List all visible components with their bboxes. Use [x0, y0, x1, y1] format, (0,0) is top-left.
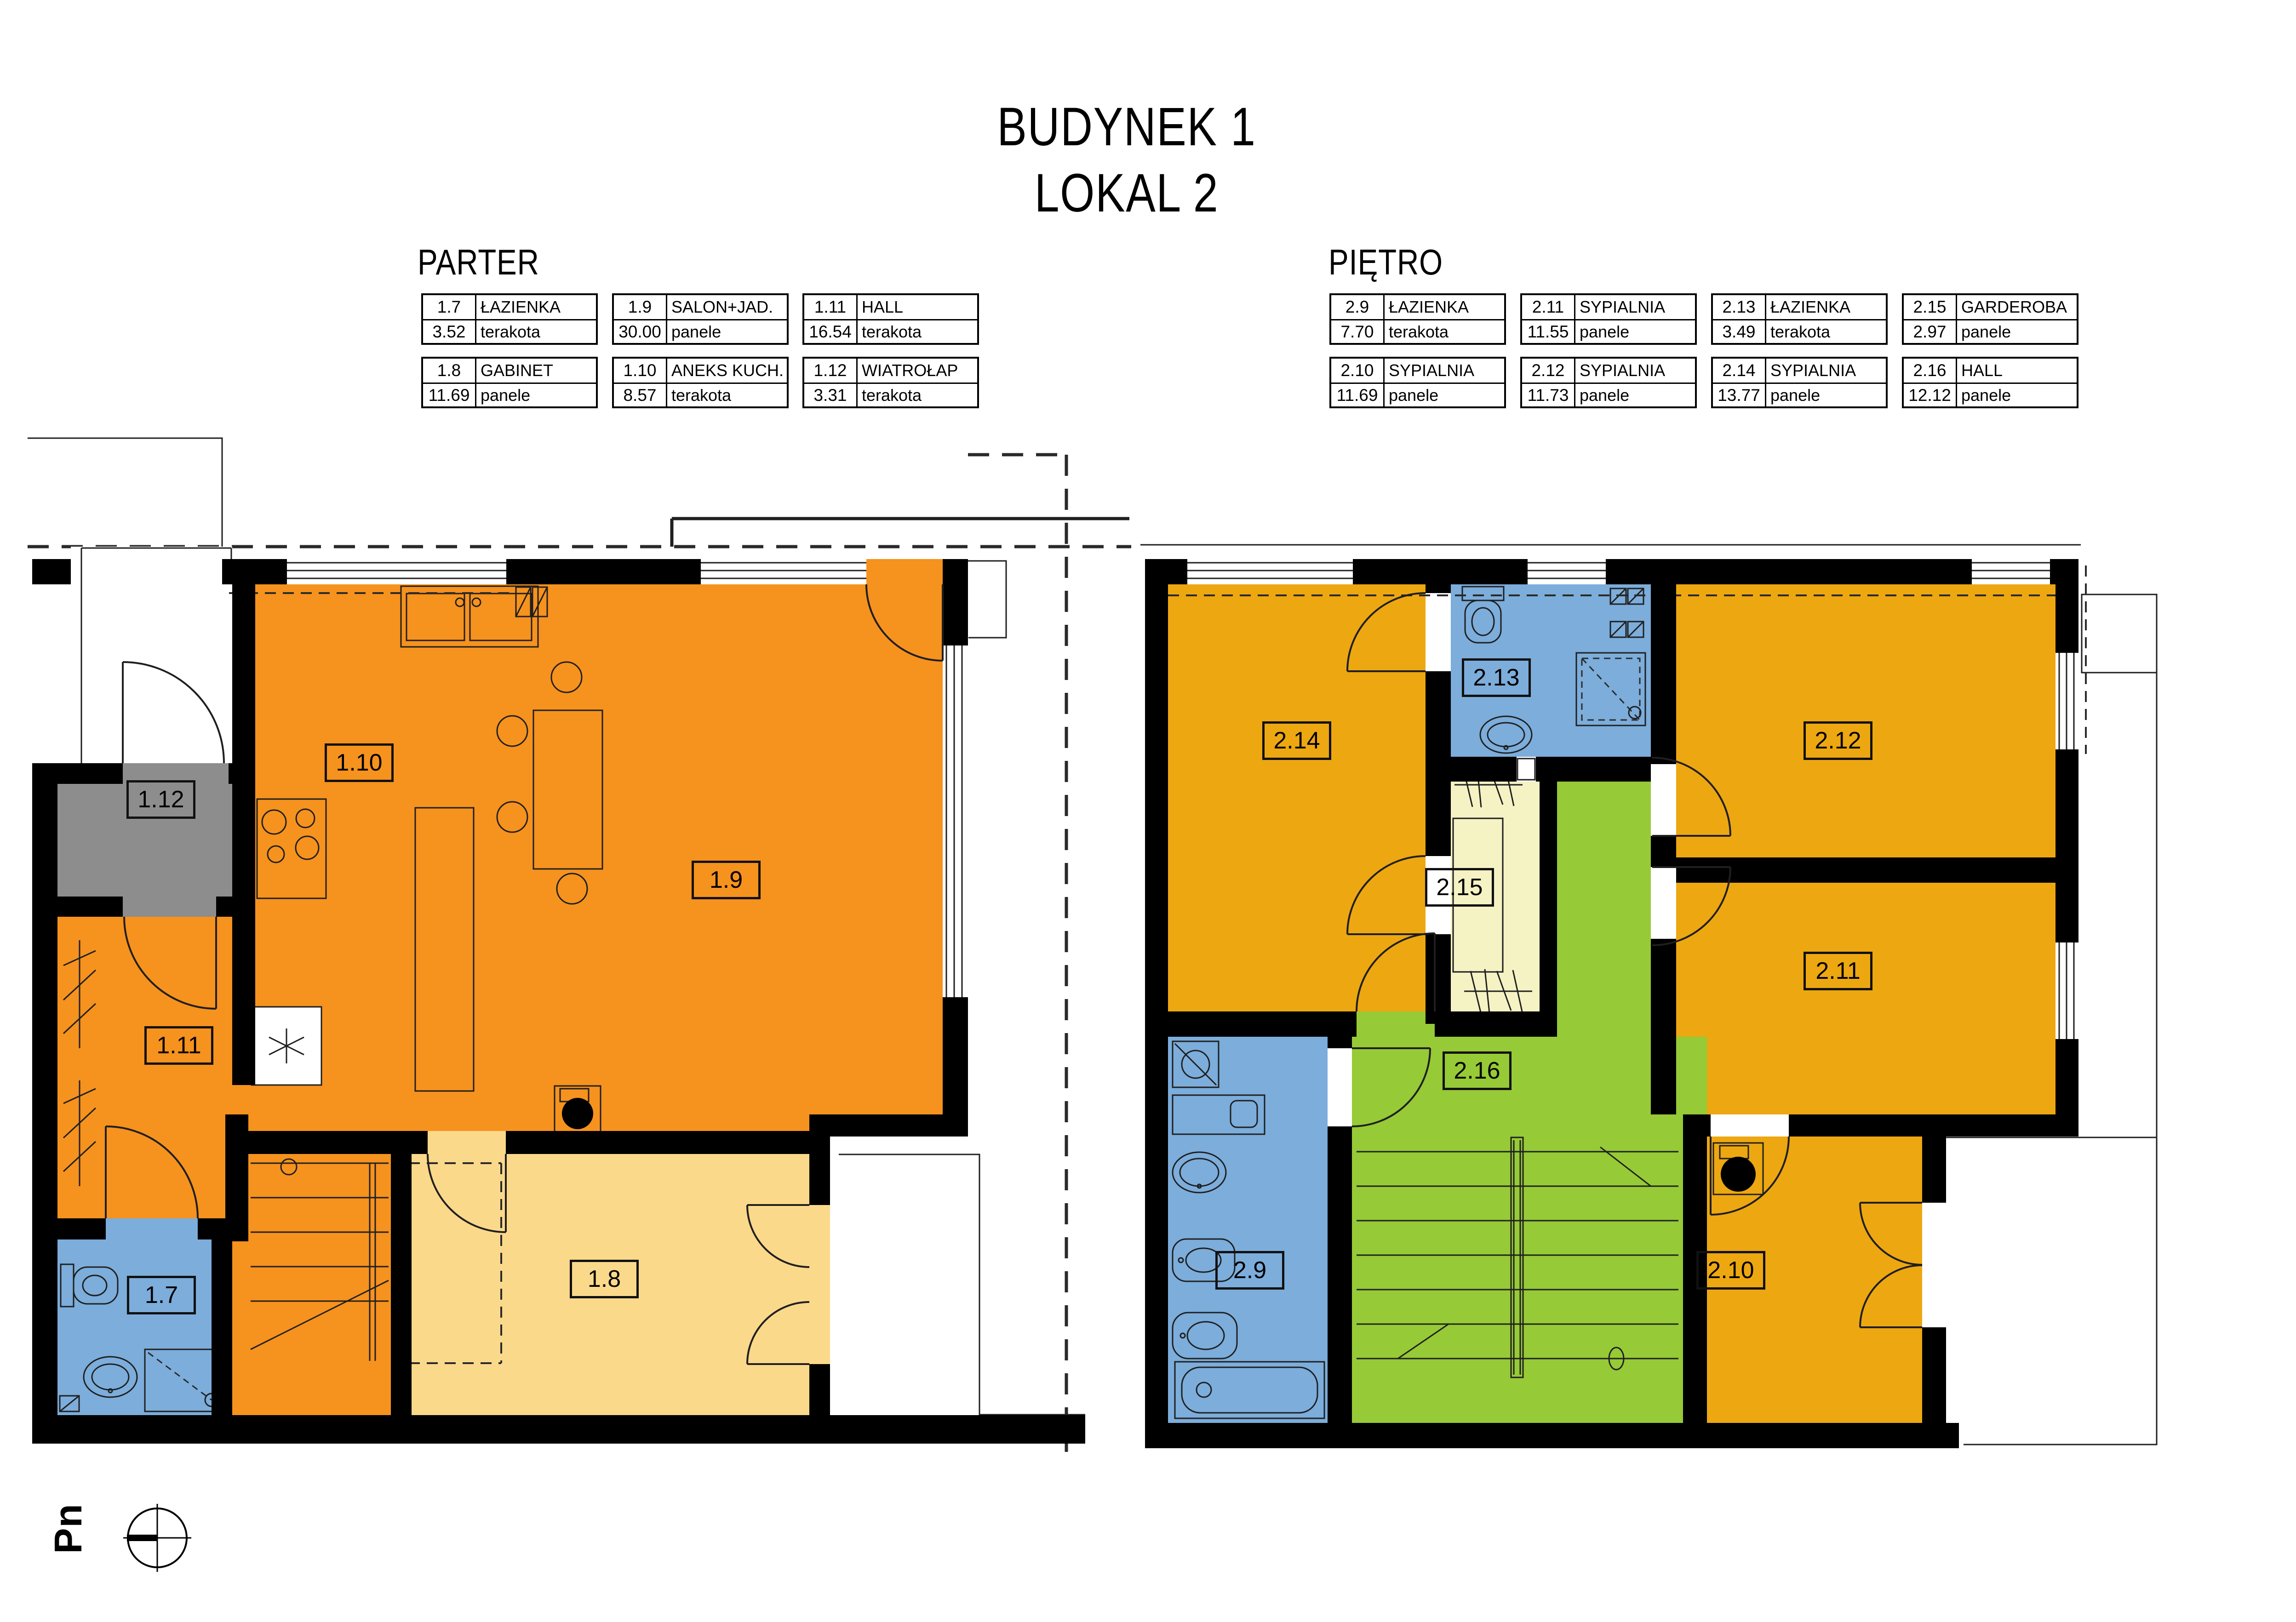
- legend-row: 2.14SYPIALNIA: [1713, 359, 1886, 383]
- plan-label-1-11: 1.11: [144, 1026, 213, 1065]
- legend-table-2-10: 2.10SYPIALNIA 11.69panele: [1329, 357, 1506, 408]
- parter-heading: PARTER: [418, 241, 539, 283]
- room-area: 30.00: [614, 320, 667, 343]
- room-number: 1.12: [804, 359, 858, 383]
- room-floor-finish: terakota: [476, 322, 596, 342]
- room-floor-finish: panele: [1766, 386, 1886, 405]
- window-icon: [1187, 559, 1353, 584]
- room-area: 2.97: [1904, 320, 1957, 343]
- door-threshold: [1517, 757, 1536, 782]
- legend-table-1-12: 1.12WIATROŁAP 3.31terakota: [802, 357, 979, 408]
- page-title: BUDYNEK 1 LOKAL 2: [825, 94, 1428, 227]
- room-floor-finish: panele: [1957, 322, 2077, 342]
- room-floor-finish: panele: [1575, 322, 1695, 342]
- room-area: 12.12: [1904, 384, 1957, 406]
- legend-table-2-14: 2.14SYPIALNIA 13.77panele: [1711, 357, 1888, 408]
- room-fills: [1168, 584, 2056, 1423]
- plan-label-1-9: 1.9: [692, 861, 761, 899]
- legend-row: 30.00panele: [614, 319, 787, 343]
- room-2-14-area: [1168, 584, 1426, 1011]
- room-number: 1.10: [614, 359, 667, 383]
- room-floor-finish: terakota: [858, 322, 977, 342]
- plan-label-1-10: 1.10: [325, 743, 394, 782]
- legend-row: 2.97panele: [1904, 319, 2077, 343]
- room-area: 7.70: [1331, 320, 1385, 343]
- room-name: ŁAZIENKA: [1385, 297, 1504, 317]
- room-area: 3.49: [1713, 320, 1766, 343]
- room-number: 2.9: [1331, 295, 1385, 319]
- window-icon: [1528, 559, 1606, 584]
- room-name: HALL: [858, 297, 977, 317]
- room-name: SYPIALNIA: [1575, 297, 1695, 317]
- legend-row: 2.12SYPIALNIA: [1522, 359, 1695, 383]
- legend-row: 11.69panele: [1331, 383, 1504, 406]
- room-floor-finish: panele: [667, 322, 787, 342]
- room-area: 3.31: [804, 384, 858, 406]
- room-area: 11.73: [1522, 384, 1575, 406]
- legend-row: 16.54terakota: [804, 319, 977, 343]
- legend-row: 1.8GABINET: [423, 359, 596, 383]
- fridge-icon: [252, 1007, 321, 1085]
- room-area: 11.55: [1522, 320, 1575, 343]
- room-number: 2.11: [1522, 295, 1575, 319]
- legend-row: 11.55panele: [1522, 319, 1695, 343]
- legend-row: 7.70terakota: [1331, 319, 1504, 343]
- room-number: 2.15: [1904, 295, 1957, 319]
- plan-label-2-11: 2.11: [1804, 952, 1872, 990]
- plan-label-2-13: 2.13: [1462, 658, 1531, 697]
- room-name: HALL: [1957, 361, 2077, 380]
- room-number: 2.10: [1331, 359, 1385, 383]
- legend-table-1-8: 1.8GABINET 11.69panele: [421, 357, 598, 408]
- legend-row: 2.11SYPIALNIA: [1522, 295, 1695, 319]
- legend-row: 2.10SYPIALNIA: [1331, 359, 1504, 383]
- legend-row: 1.10ANEKS KUCH.: [614, 359, 787, 383]
- room-area: 3.52: [423, 320, 476, 343]
- plan-label-2-9: 2.9: [1215, 1251, 1284, 1290]
- room-name: ANEKS KUCH.: [667, 361, 787, 380]
- legend-table-2-9: 2.9ŁAZIENKA 7.70terakota: [1329, 293, 1506, 345]
- legend-row: 1.12WIATROŁAP: [804, 359, 977, 383]
- room-floor-finish: terakota: [1385, 322, 1504, 342]
- legend-table-2-11: 2.11SYPIALNIA 11.55panele: [1520, 293, 1697, 345]
- plan-label-1-8: 1.8: [570, 1260, 639, 1298]
- title-line-unit: LOKAL 2: [825, 160, 1428, 227]
- room-number: 1.8: [423, 359, 476, 383]
- window-icon: [1972, 559, 2050, 584]
- room-name: SYPIALNIA: [1575, 361, 1695, 380]
- room-number: 1.7: [423, 295, 476, 319]
- room-number: 1.11: [804, 295, 858, 319]
- title-line-building: BUDYNEK 1: [825, 94, 1428, 160]
- window-icon: [287, 559, 506, 584]
- corridor-stairs-area: [232, 1133, 391, 1415]
- north-label: Pn: [46, 1487, 83, 1570]
- pietro-floor-plan: [1140, 437, 2198, 1494]
- room-floor-finish: panele: [1957, 386, 2077, 405]
- legend-row: 3.52terakota: [423, 319, 596, 343]
- room-floor-finish: panele: [476, 386, 596, 405]
- legend-table-1-10: 1.10ANEKS KUCH. 8.57terakota: [612, 357, 789, 408]
- legend-row: 3.49terakota: [1713, 319, 1886, 343]
- legend-table-2-15: 2.15GARDEROBA 2.97panele: [1902, 293, 2078, 345]
- window-icon: [2056, 942, 2078, 1039]
- legend-row: 2.9ŁAZIENKA: [1331, 295, 1504, 319]
- pietro-heading: PIĘTRO: [1328, 241, 1443, 283]
- stairwell-area: [1352, 1114, 1683, 1423]
- room-1-11-hall-area: [57, 917, 232, 1218]
- room-name: SALON+JAD.: [667, 297, 787, 317]
- room-floor-finish: panele: [1385, 386, 1504, 405]
- room-area: 16.54: [804, 320, 858, 343]
- legend-row: 2.13ŁAZIENKA: [1713, 295, 1886, 319]
- plan-label-1-12: 1.12: [126, 780, 195, 819]
- legend-row: 11.69panele: [423, 383, 596, 406]
- room-floor-finish: terakota: [667, 386, 787, 405]
- hall-corridor-strip: [1557, 782, 1651, 1037]
- legend-row: 3.31terakota: [804, 383, 977, 406]
- room-area: 13.77: [1713, 384, 1766, 406]
- legend-table-2-16: 2.16HALL 12.12panele: [1902, 357, 2078, 408]
- window-icon: [701, 559, 866, 584]
- room-2-11-area: [1676, 883, 2056, 1114]
- room-name: GARDEROBA: [1957, 297, 2077, 317]
- legend-row: 1.11HALL: [804, 295, 977, 319]
- room-name: GABINET: [476, 361, 596, 380]
- parter-floor-plan: [28, 437, 1140, 1494]
- legend-row: 1.7ŁAZIENKA: [423, 295, 596, 319]
- room-floor-finish: terakota: [858, 386, 977, 405]
- legend-row: 2.16HALL: [1904, 359, 2077, 383]
- window-icon: [2056, 653, 2078, 749]
- room-name: WIATROŁAP: [858, 361, 977, 380]
- legend-table-2-12: 2.12SYPIALNIA 11.73panele: [1520, 357, 1697, 408]
- room-name: ŁAZIENKA: [1766, 297, 1886, 317]
- legend-table-1-9: 1.9SALON+JAD. 30.00panele: [612, 293, 789, 345]
- window-icon: [943, 645, 968, 997]
- room-name: ŁAZIENKA: [476, 297, 596, 317]
- legend-table-1-7: 1.7ŁAZIENKA 3.52terakota: [421, 293, 598, 345]
- room-area: 11.69: [1331, 384, 1385, 406]
- room-area: 8.57: [614, 384, 667, 406]
- room-number: 1.9: [614, 295, 667, 319]
- room-name: SYPIALNIA: [1385, 361, 1504, 380]
- plan-label-2-16: 2.16: [1443, 1051, 1512, 1090]
- legend-row: 8.57terakota: [614, 383, 787, 406]
- room-floor-finish: panele: [1575, 386, 1695, 405]
- legend-table-2-13: 2.13ŁAZIENKA 3.49terakota: [1711, 293, 1888, 345]
- plan-label-2-15: 2.15: [1425, 868, 1494, 907]
- plan-label-1-7: 1.7: [127, 1276, 196, 1314]
- room-number: 2.13: [1713, 295, 1766, 319]
- room-floor-finish: terakota: [1766, 322, 1886, 342]
- north-compass-icon: [120, 1501, 194, 1575]
- legend-row: 13.77panele: [1713, 383, 1886, 406]
- legend-row: 12.12panele: [1904, 383, 2077, 406]
- plan-label-2-14: 2.14: [1262, 721, 1331, 760]
- legend-row: 1.9SALON+JAD.: [614, 295, 787, 319]
- plan-label-2-10: 2.10: [1696, 1251, 1765, 1290]
- room-area: 11.69: [423, 384, 476, 406]
- drawing-sheet: BUDYNEK 1 LOKAL 2 PARTER PIĘTRO 1.7ŁAZIE…: [0, 0, 2296, 1622]
- legend-row: 11.73panele: [1522, 383, 1695, 406]
- room-number: 2.14: [1713, 359, 1766, 383]
- plan-label-2-12: 2.12: [1804, 721, 1872, 760]
- room-number: 2.12: [1522, 359, 1575, 383]
- legend-row: 2.15GARDEROBA: [1904, 295, 2077, 319]
- legend-table-1-11: 1.11HALL 16.54terakota: [802, 293, 979, 345]
- room-number: 2.16: [1904, 359, 1957, 383]
- room-2-12-area: [1676, 584, 2056, 857]
- entry-porch-area: [71, 547, 232, 763]
- room-name: SYPIALNIA: [1766, 361, 1886, 380]
